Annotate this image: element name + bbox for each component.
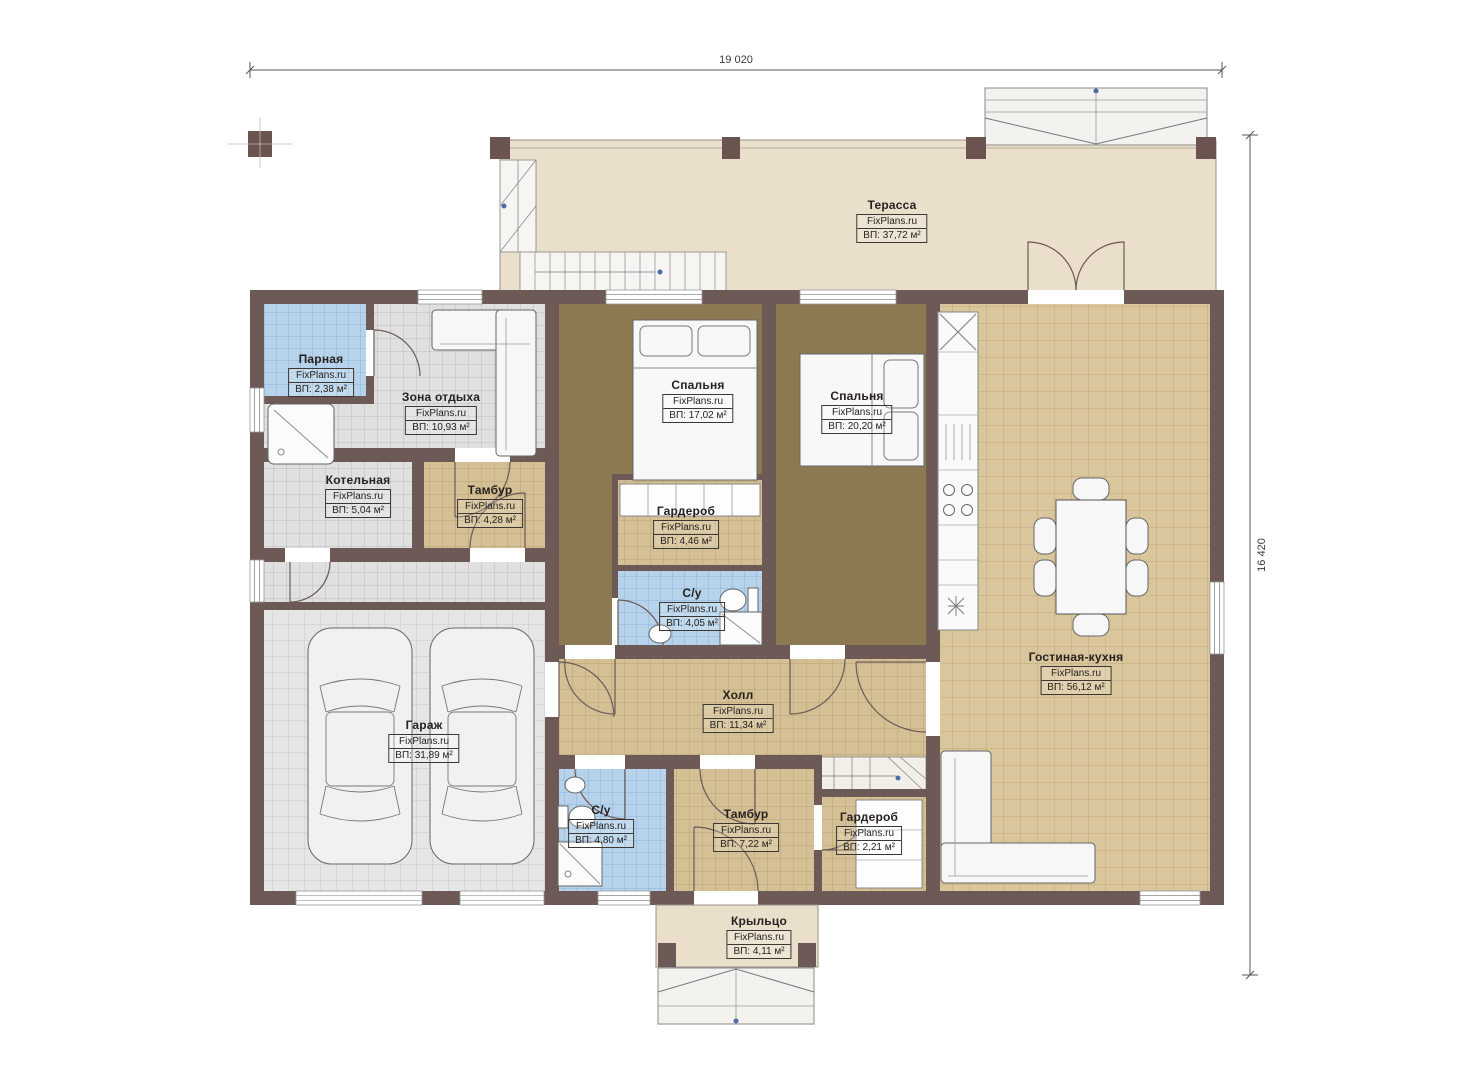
room-label-bedroom-2: Спальня FixPlans.ru ВП: 20,20 м² [821,389,892,434]
room-name: Котельная [325,473,391,487]
watermark: FixPlans.ru [1041,667,1110,681]
room-info-box: FixPlans.ru ВП: 31,89 м² [388,734,459,763]
room-label-bedroom-1: Спальня FixPlans.ru ВП: 17,02 м² [662,378,733,423]
room-name: С/у [659,586,725,600]
watermark: FixPlans.ru [822,406,891,420]
room-area: ВП: 20,20 м² [822,420,891,433]
terrace-canopy [985,88,1207,145]
room-label-lounge: Зона отдыха FixPlans.ru ВП: 10,93 м² [402,390,480,435]
room-info-box: FixPlans.ru ВП: 10,93 м² [405,406,476,435]
room-label-terrace: Терасса FixPlans.ru ВП: 37,72 м² [856,198,927,243]
watermark: FixPlans.ru [837,827,901,841]
room-label-vestibule-1: Тамбур FixPlans.ru ВП: 4,28 м² [457,483,523,528]
room-name: Тамбур [457,483,523,497]
watermark: FixPlans.ru [458,500,522,514]
room-label-hall: Холл FixPlans.ru ВП: 11,34 м² [703,688,774,733]
room-info-box: FixPlans.ru ВП: 4,05 м² [659,602,725,631]
room-info-box: FixPlans.ru ВП: 20,20 м² [821,405,892,434]
porch-canopy [658,968,814,1024]
room-info-box: FixPlans.ru ВП: 2,21 м² [836,826,902,855]
room-info-box: FixPlans.ru ВП: 4,46 м² [653,520,719,549]
watermark: FixPlans.ru [289,369,353,383]
room-name: Зона отдыха [402,390,480,404]
watermark: FixPlans.ru [406,407,475,421]
room-area: ВП: 17,02 м² [663,409,732,422]
watermark: FixPlans.ru [857,215,926,229]
room-info-box: FixPlans.ru ВП: 7,22 м² [713,823,779,852]
room-area: ВП: 2,38 м² [289,383,353,396]
room-area: ВП: 4,11 м² [727,945,790,958]
room-name: С/у [568,803,634,817]
kitchen-counter [938,312,978,630]
room-name: Гардероб [653,504,719,518]
room-info-box: FixPlans.ru ВП: 11,34 м² [703,704,774,733]
room-info-box: FixPlans.ru ВП: 2,38 м² [288,368,354,397]
dimension-height-label: 16 420 [1256,538,1268,572]
watermark: FixPlans.ru [727,931,790,945]
watermark: FixPlans.ru [714,824,778,838]
room-label-bathroom-1: С/у FixPlans.ru ВП: 4,05 м² [659,586,725,631]
watermark: FixPlans.ru [654,521,718,535]
room-area: ВП: 2,21 м² [837,841,901,854]
interior-stairs [816,757,926,793]
room-info-box: FixPlans.ru ВП: 56,12 м² [1040,666,1111,695]
room-info-box: FixPlans.ru ВП: 17,02 м² [662,394,733,423]
watermark: FixPlans.ru [663,395,732,409]
room-label-living-kitchen: Гостиная-кухня FixPlans.ru ВП: 56,12 м² [1029,650,1124,695]
room-label-bathroom-2: С/у FixPlans.ru ВП: 4,80 м² [568,803,634,848]
room-area: ВП: 11,34 м² [704,719,773,732]
garage-doors [296,891,544,905]
room-name: Тамбур [713,807,779,821]
room-name: Спальня [821,389,892,403]
room-label-garage: Гараж FixPlans.ru ВП: 31,89 м² [388,718,459,763]
room-area: ВП: 31,89 м² [389,749,458,762]
room-area: ВП: 37,72 м² [857,229,926,242]
room-info-box: FixPlans.ru ВП: 5,04 м² [325,489,391,518]
shower-sauna [268,404,334,464]
room-label-porch: Крыльцо FixPlans.ru ВП: 4,11 м² [726,914,791,959]
room-area: ВП: 4,28 м² [458,514,522,527]
room-info-box: FixPlans.ru ВП: 4,80 м² [568,819,634,848]
room-area: ВП: 7,22 м² [714,838,778,851]
room-name: Терасса [856,198,927,212]
room-name: Гостиная-кухня [1029,650,1124,664]
floor-plan-page: 19 020 16 420 Терасса FixPlans.ru ВП: 37… [0,0,1474,1080]
room-info-box: FixPlans.ru ВП: 4,28 м² [457,499,523,528]
room-area: ВП: 4,46 м² [654,535,718,548]
room-label-vestibule-2: Тамбур FixPlans.ru ВП: 7,22 м² [713,807,779,852]
room-area: ВП: 56,12 м² [1041,681,1110,694]
dimension-width-label: 19 020 [719,54,753,66]
watermark: FixPlans.ru [326,490,390,504]
room-name: Парная [288,352,354,366]
room-area: ВП: 10,93 м² [406,421,475,434]
room-area: ВП: 4,80 м² [569,834,633,847]
watermark: FixPlans.ru [660,603,724,617]
room-area: ВП: 4,05 м² [660,617,724,630]
room-name: Гардероб [836,810,902,824]
room-label-boiler: Котельная FixPlans.ru ВП: 5,04 м² [325,473,391,518]
room-name: Крыльцо [726,914,791,928]
room-name: Спальня [662,378,733,392]
room-label-wardrobe-1: Гардероб FixPlans.ru ВП: 4,46 м² [653,504,719,549]
room-area: ВП: 5,04 м² [326,504,390,517]
room-label-sauna: Парная FixPlans.ru ВП: 2,38 м² [288,352,354,397]
room-info-box: FixPlans.ru ВП: 37,72 м² [856,214,927,243]
room-info-box: FixPlans.ru ВП: 4,11 м² [726,930,791,959]
watermark: FixPlans.ru [569,820,633,834]
room-label-wardrobe-2: Гардероб FixPlans.ru ВП: 2,21 м² [836,810,902,855]
watermark: FixPlans.ru [389,735,458,749]
room-name: Гараж [388,718,459,732]
room-name: Холл [703,688,774,702]
watermark: FixPlans.ru [704,705,773,719]
